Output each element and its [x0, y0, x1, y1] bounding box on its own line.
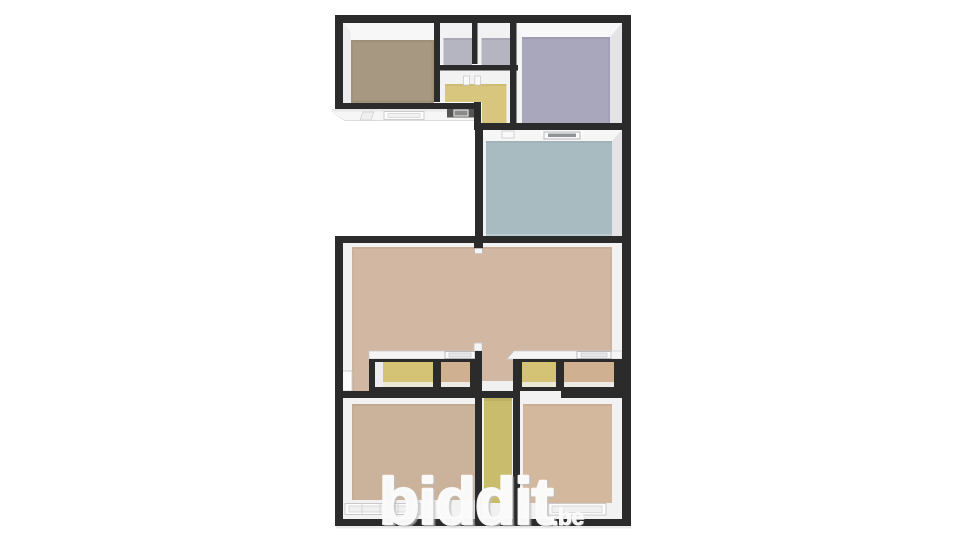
svg-text:biddit: biddit [379, 464, 554, 538]
svg-text:.be: .be [552, 504, 584, 530]
